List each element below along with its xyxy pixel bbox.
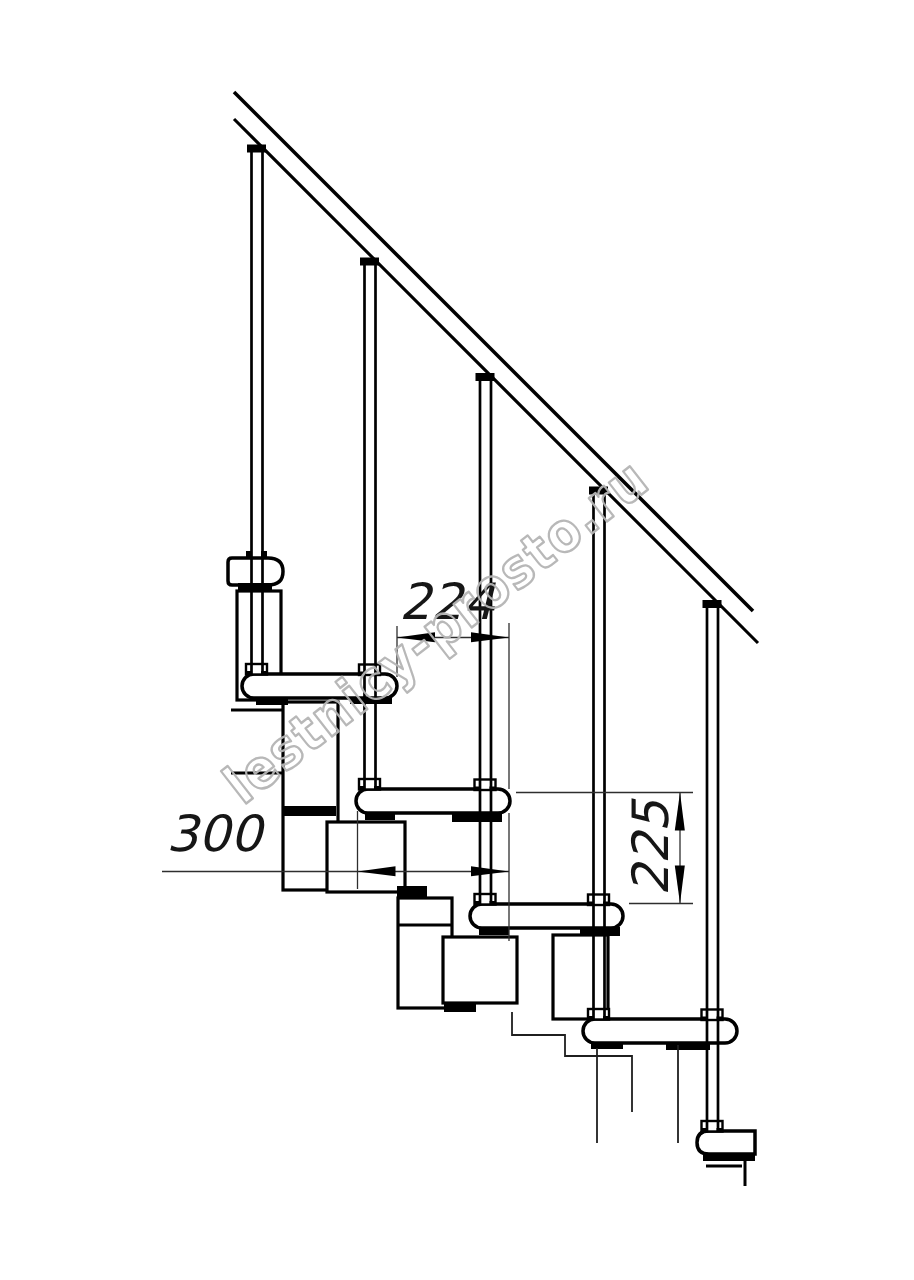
riser-box-2 (327, 822, 405, 892)
riser-tube-5 (553, 935, 608, 1019)
drawing-canvas: 224 300 225 lestnicy-prosto.ru (0, 0, 914, 1280)
tread-2 (356, 789, 510, 813)
staircase-technical-drawing: 224 300 225 lestnicy-prosto.ru (0, 0, 914, 1280)
landing-tread-end (228, 558, 283, 585)
baluster-5 (707, 608, 718, 1132)
module-foot-3 (444, 1003, 476, 1012)
tread-5 (697, 1131, 755, 1154)
baluster-3 (480, 381, 491, 905)
module-foot-2 (397, 886, 427, 898)
dimension-rise-label: 225 (622, 798, 680, 896)
module-foot-1 (284, 806, 336, 816)
handrail-top-edge (234, 92, 753, 611)
tread-4 (583, 1019, 737, 1043)
riser-box-4 (443, 937, 517, 1003)
tread-3 (470, 904, 623, 928)
